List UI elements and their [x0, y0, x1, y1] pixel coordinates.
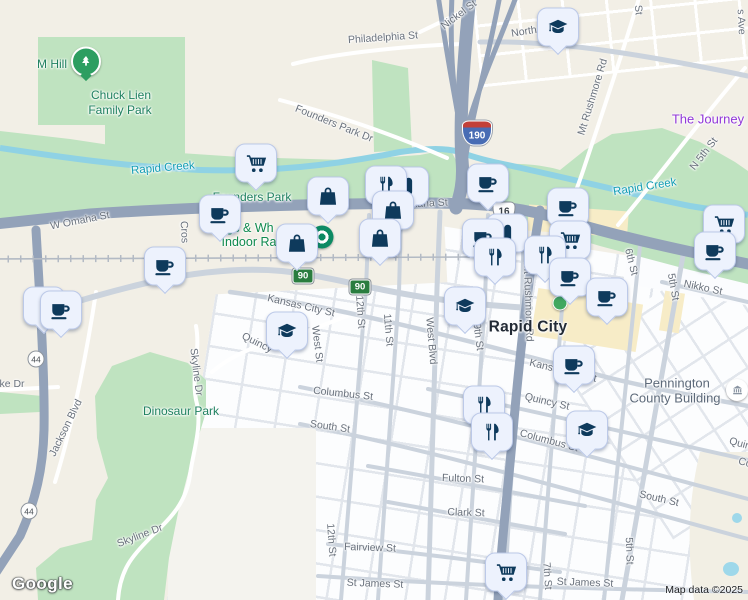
- map-label-park: Dinosaur Park: [143, 405, 219, 417]
- coffee-icon: [209, 203, 231, 225]
- poi-marker-cart[interactable]: [235, 144, 277, 183]
- poi-marker-graduation[interactable]: [266, 312, 308, 351]
- poi-marker-graduation[interactable]: [444, 287, 486, 326]
- map-label-attr: The Journey: [672, 113, 744, 126]
- highway-shield-90: 90: [293, 269, 314, 284]
- map-label-park: Chuck Lien: [91, 89, 151, 101]
- shopping-bag-icon: [369, 227, 391, 249]
- highway-shield-90: 90: [350, 280, 371, 295]
- highway-shield-44: 44: [21, 503, 38, 520]
- poi-marker-coffee[interactable]: [144, 247, 186, 286]
- map-canvas[interactable]: Philadelphia StNickel StNorthSts AveMt R…: [0, 0, 748, 600]
- poi-marker-bag[interactable]: [276, 224, 318, 263]
- poi-marker-bag[interactable]: [307, 177, 349, 216]
- poi-marker-coffee[interactable]: [586, 278, 628, 317]
- shopping-bag-icon: [286, 232, 308, 254]
- map-label-city: Rapid City: [489, 319, 568, 335]
- coffee-icon: [596, 286, 618, 308]
- poi-pin-park-tree[interactable]: [71, 47, 101, 80]
- poi-marker-cart[interactable]: [485, 553, 527, 592]
- shopping-bag-icon: [317, 185, 339, 207]
- map-label-st: 12th St: [325, 523, 338, 557]
- google-logo[interactable]: Google: [12, 574, 73, 594]
- cart-icon: [245, 152, 268, 174]
- pond: [732, 513, 742, 523]
- poi-marker-coffee[interactable]: [467, 164, 509, 203]
- map-label-st: 11th St: [381, 313, 394, 346]
- map-label-st: St James St: [557, 577, 614, 589]
- map-label-st: Clark St: [447, 507, 485, 519]
- coffee-icon: [154, 255, 176, 277]
- map-label-st: St: [632, 5, 643, 16]
- coffee-icon: [559, 266, 581, 288]
- map-label-st: 9th St: [471, 323, 485, 352]
- graduation-cap-icon: [546, 16, 570, 38]
- coffee-icon: [50, 299, 72, 321]
- poi-marker-restaurant[interactable]: [471, 413, 513, 452]
- coffee-icon: [477, 172, 499, 194]
- map-label-st: 5th St: [623, 537, 634, 565]
- cart-icon: [495, 561, 518, 583]
- poi-marker-coffee[interactable]: [199, 195, 241, 234]
- map-label-biz: Indoor Ra: [222, 236, 277, 249]
- graduation-cap-icon: [275, 320, 299, 342]
- highway-shield-44: 44: [28, 351, 45, 368]
- highway-shield-190: 190: [462, 121, 492, 146]
- poi-marker-bag[interactable]: [359, 219, 401, 258]
- map-label-park: Family Park: [88, 104, 151, 116]
- map-label-st: Fulton St: [442, 473, 484, 485]
- coffee-icon: [557, 196, 579, 218]
- graduation-cap-icon: [453, 295, 477, 317]
- map-label-civic: County Building: [629, 392, 720, 405]
- map-label-st: Fairview St: [344, 542, 396, 554]
- pond: [723, 562, 739, 576]
- poi-marker-coffee[interactable]: [694, 232, 736, 271]
- restaurant-icon: [482, 421, 503, 443]
- poi-marker-coffee[interactable]: [553, 346, 595, 385]
- coffee-icon: [704, 240, 726, 262]
- map-label-st: s Ave: [735, 9, 747, 35]
- poi-marker-coffee[interactable]: [549, 258, 591, 297]
- government-building-icon: [726, 379, 748, 401]
- map-label-st: ke Dr: [0, 379, 25, 390]
- poi-marker-restaurant[interactable]: [474, 238, 516, 277]
- poi-pin-civic-building[interactable]: [726, 379, 748, 401]
- map-label-civic: Pennington: [644, 377, 710, 390]
- poi-marker-graduation[interactable]: [566, 411, 608, 450]
- map-label-st: Cros: [178, 221, 190, 244]
- restaurant-icon: [485, 246, 506, 268]
- map-label-st: 7th St: [541, 562, 553, 590]
- poi-marker-graduation[interactable]: [537, 8, 579, 47]
- map-label-park: M Hill: [37, 58, 67, 70]
- poi-marker-coffee[interactable]: [40, 291, 82, 330]
- map-label-st: 12th St: [354, 295, 367, 329]
- coffee-icon: [563, 354, 585, 376]
- graduation-cap-icon: [575, 419, 599, 441]
- map-attribution: Map data ©2025: [665, 584, 743, 596]
- map-label-st: St James St: [347, 578, 404, 590]
